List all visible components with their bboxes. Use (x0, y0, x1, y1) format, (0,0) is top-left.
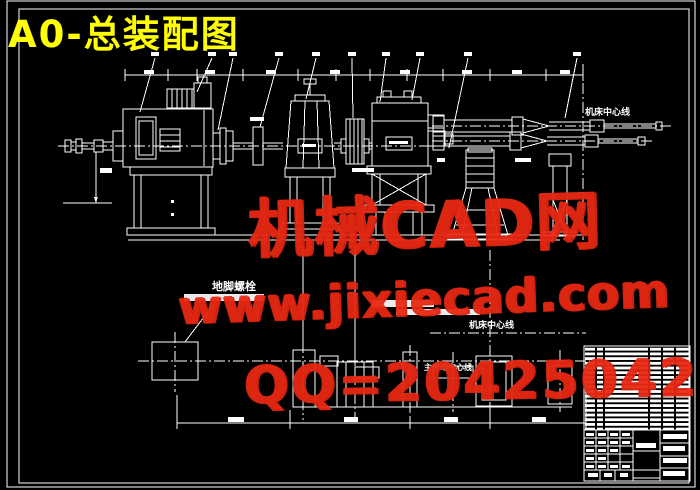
drawing-number-cell (633, 451, 660, 478)
electric-motor (63, 77, 215, 235)
top-dimension-chain (125, 69, 583, 81)
dimension-text-marks (144, 70, 570, 74)
spindle-shafts (433, 116, 662, 162)
coupling (213, 117, 283, 165)
balloon-leaders (140, 52, 581, 148)
pulley (334, 119, 372, 164)
drawing-title: A0-总装配图 (8, 4, 240, 58)
watermark-brand: 机械CAD网 (247, 169, 603, 270)
label-machine-centerline-top: 机床中心线 (585, 105, 630, 118)
watermark-qq: QQ=20425042 (244, 348, 699, 416)
cad-screenshot: A0-总装配图 机床中心线 地脚螺栓 机床中心线 主传动中心线 机械CAD网 w… (0, 0, 700, 490)
